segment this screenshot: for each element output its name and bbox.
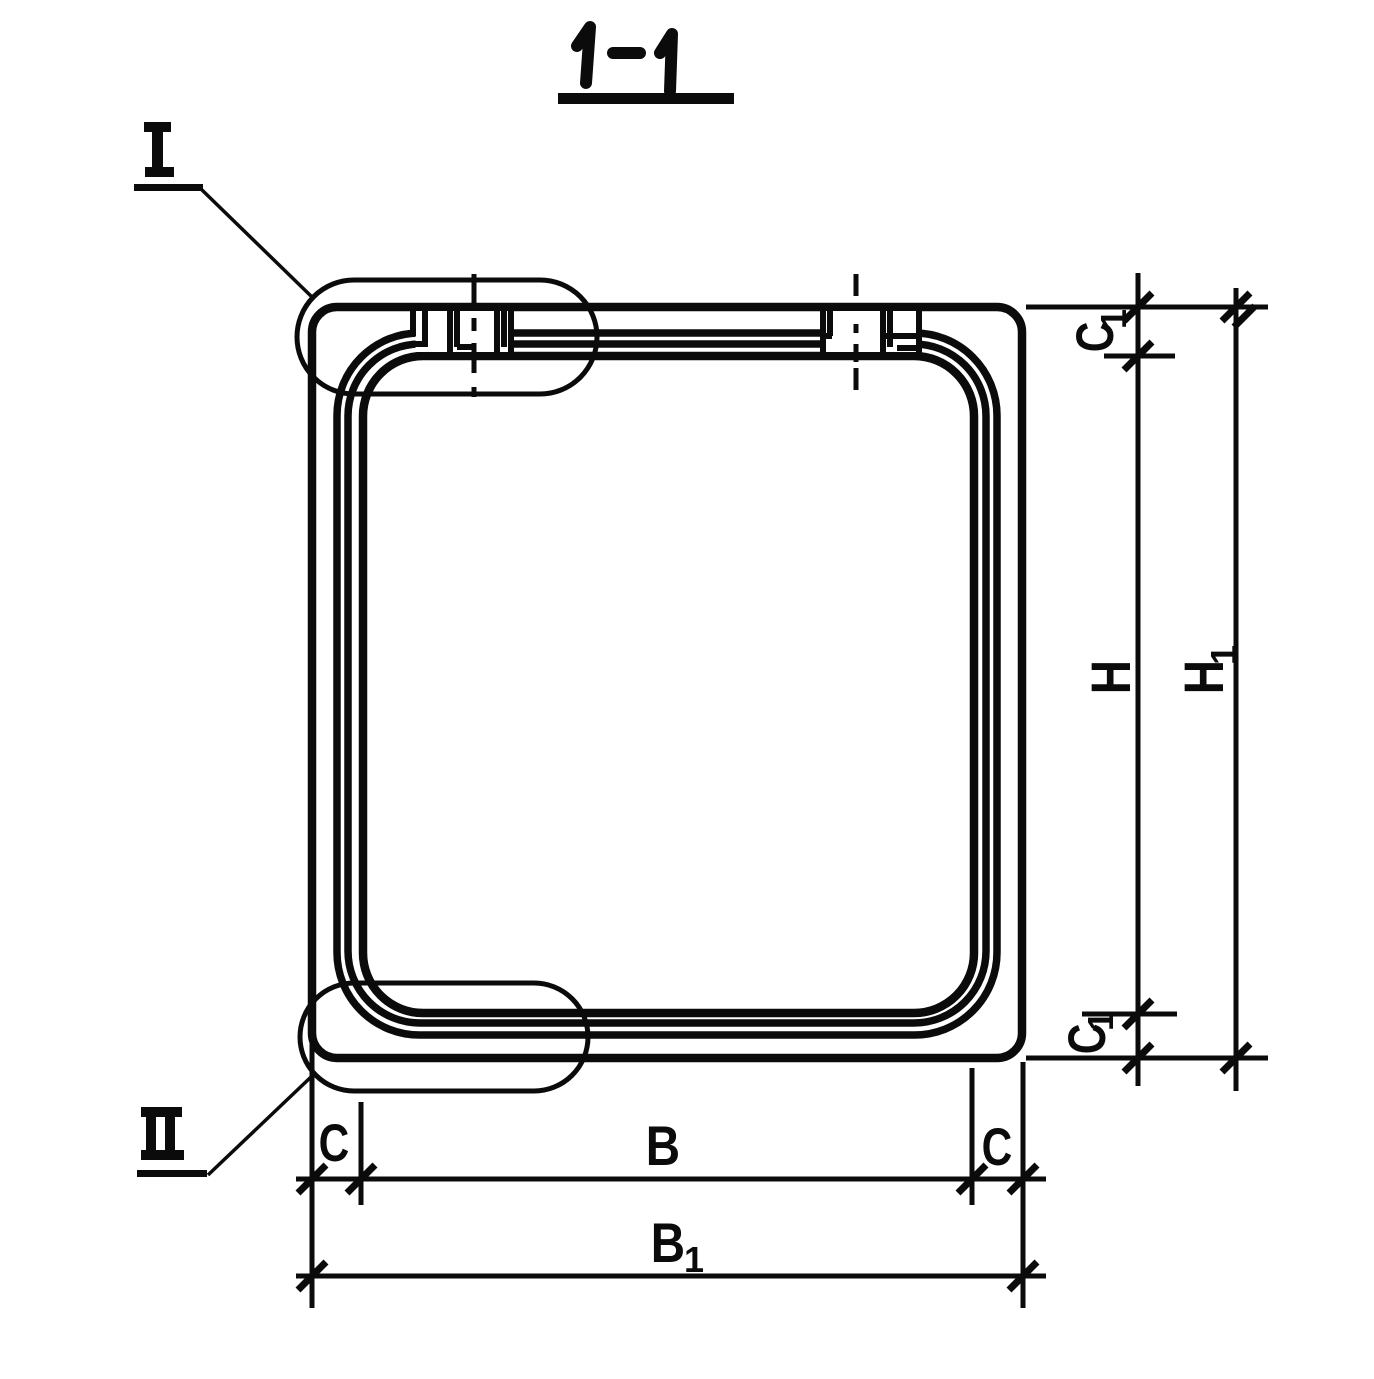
svg-text:1: 1 [1093, 309, 1134, 329]
svg-text:B: B [646, 1115, 680, 1177]
svg-text:1: 1 [1080, 1011, 1121, 1031]
svg-text:B: B [651, 1212, 685, 1274]
svg-text:1: 1 [684, 1239, 704, 1280]
svg-text:C: C [319, 1115, 350, 1174]
svg-text:1: 1 [1203, 645, 1244, 665]
svg-text:H: H [1080, 660, 1142, 694]
svg-text:C: C [982, 1119, 1013, 1178]
